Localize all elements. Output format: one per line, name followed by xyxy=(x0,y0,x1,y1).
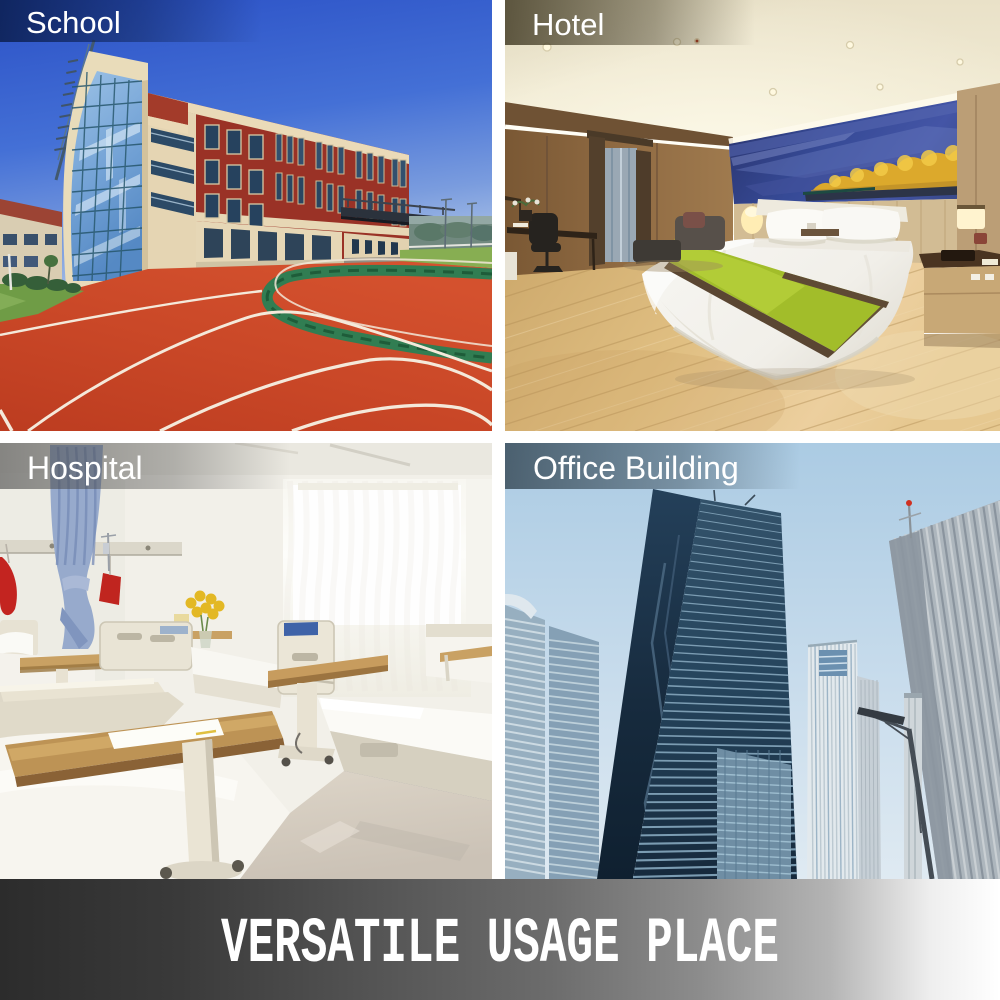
svg-text:Office Building: Office Building xyxy=(533,450,739,486)
svg-text:Hospital: Hospital xyxy=(27,450,143,486)
svg-text:VERSATILE USAGE PLACE: VERSATILE USAGE PLACE xyxy=(221,909,779,981)
svg-text:Hotel: Hotel xyxy=(532,7,604,42)
svg-text:School: School xyxy=(26,5,121,40)
